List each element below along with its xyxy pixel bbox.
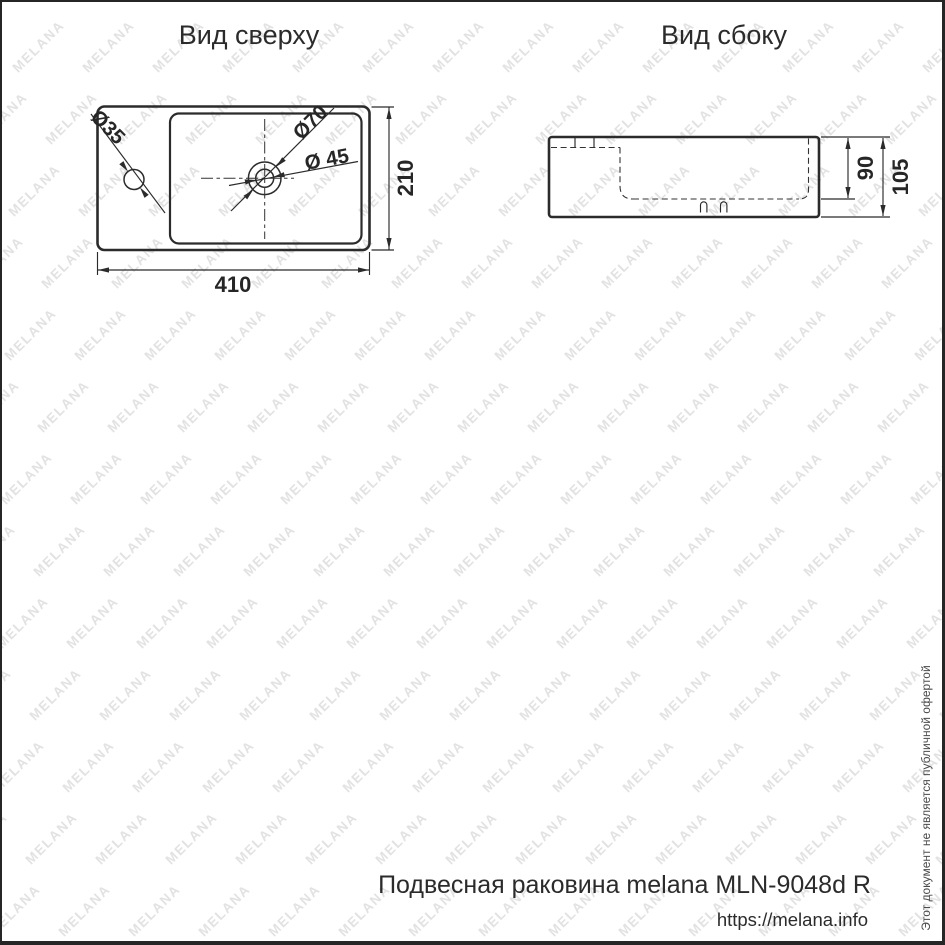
dim-height-label: 105	[888, 159, 913, 196]
arrowhead	[98, 267, 109, 272]
drain-mark	[701, 202, 707, 213]
arrowhead	[358, 267, 369, 272]
arrowhead	[274, 172, 285, 177]
dia45-label: Ø 45	[303, 144, 351, 175]
arrowhead	[386, 108, 391, 119]
technical-drawing-svg: 410 210 Ø70 Ø 45 Ø35	[2, 2, 945, 945]
arrowhead	[245, 179, 256, 184]
dim-width-label: 410	[215, 272, 252, 297]
dim-basin-depth-label: 90	[853, 156, 878, 180]
hidden-basin-right-wall	[799, 139, 809, 200]
sink-outline-side	[549, 137, 819, 217]
dia35-label: Ø35	[86, 105, 130, 149]
drawing-sheet: MELANAMELANAMELANAMELANAMELANAMELANAMELA…	[0, 0, 945, 945]
arrowhead	[244, 190, 254, 200]
top-view-drawing: 410 210 Ø70 Ø 45 Ø35	[86, 101, 418, 297]
arrowhead	[386, 238, 391, 249]
arrowhead	[880, 205, 885, 216]
product-caption: Подвесная раковина melana MLN-9048d R	[378, 871, 871, 900]
arrowhead	[845, 187, 850, 198]
website-link[interactable]: https://melana.info	[717, 909, 868, 931]
arrowhead	[276, 157, 286, 167]
arrowhead	[845, 138, 850, 149]
arrowhead	[880, 138, 885, 149]
side-view-title: Вид сбоку	[572, 20, 876, 51]
dim-depth-label: 210	[393, 160, 418, 197]
drain-mark	[721, 202, 727, 213]
left-hole-circle	[124, 170, 144, 190]
disclaimer-text: Этот документ не является публичной офер…	[919, 658, 933, 938]
hidden-basin-left-wall	[620, 148, 633, 200]
top-view-title: Вид сверху	[97, 20, 401, 51]
side-view-drawing: 90 105	[549, 137, 913, 217]
